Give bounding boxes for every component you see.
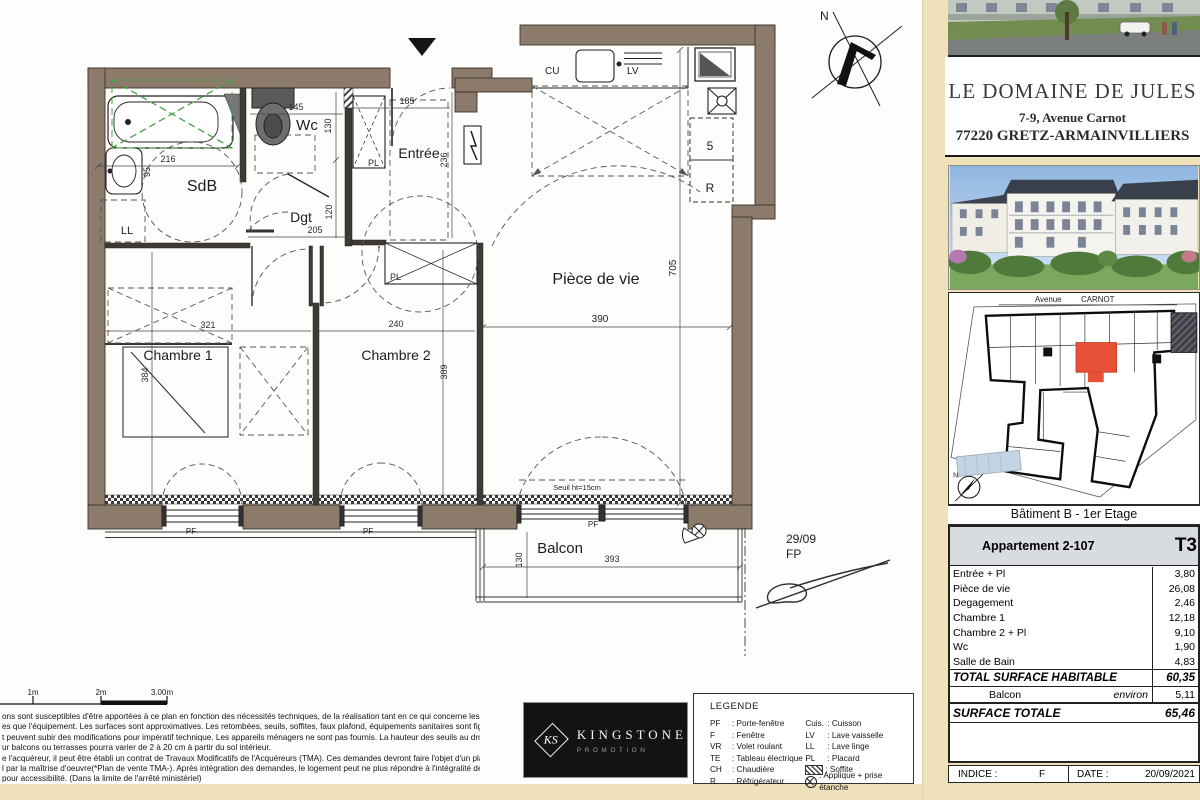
legend-label: : Lave vaisselle	[827, 731, 883, 740]
kingstone-monogram-icon: KS	[534, 723, 569, 758]
legend-abbr: LL	[805, 741, 827, 753]
legend-abbr: F	[710, 730, 732, 742]
disclaimer-line: e l'acquéreur, il peut être établi un co…	[2, 754, 480, 764]
compass-north-label: N	[820, 9, 829, 23]
legend-abbr: LV	[805, 730, 827, 742]
monogram-letters: KS	[544, 732, 558, 747]
table-row: Entrée + Pl3,80	[950, 567, 1198, 582]
dim-390: 390	[592, 314, 609, 325]
row-label: Chambre 1	[950, 612, 1152, 624]
plan-sheet-page: SdB LL Wc Dgt Entrée PL PL CU LV 5 R Piè…	[0, 0, 1200, 800]
legend-label: : Volet roulant	[732, 742, 782, 751]
legend-label: : Lave linge	[827, 742, 869, 751]
indice-label: INDICE :	[949, 769, 1016, 780]
disclaimer-line: pour accessibilité. (Dans la limite de l…	[2, 774, 480, 784]
label-5: 5	[707, 139, 714, 153]
disclaimer-line: ons sont susceptibles d'être apportées à…	[2, 712, 480, 722]
soffite-band	[105, 495, 732, 504]
row-value: 3,80	[1152, 567, 1198, 582]
legend-label: : Tableau électrique	[732, 754, 803, 763]
row-value: 26,08	[1152, 582, 1198, 597]
table-row: Pièce de vie26,08	[950, 582, 1198, 597]
dim-240: 240	[388, 319, 403, 329]
row-label: Chambre 2 + Pl	[950, 627, 1152, 639]
label-balcon: Balcon	[537, 540, 583, 557]
soffite-corner-box	[695, 48, 735, 81]
label-cu: CU	[545, 66, 559, 77]
dim-130: 130	[323, 118, 333, 133]
adjacent-building-hatched	[1171, 313, 1197, 353]
table-row: Wc1,90	[950, 640, 1198, 655]
legend-label: : Chaudière	[732, 765, 774, 774]
highlighted-unit	[1076, 343, 1117, 373]
apartment-type: T3	[1175, 535, 1197, 557]
date-value: 20/09/2021	[1131, 769, 1199, 780]
site-compass-icon	[955, 474, 983, 501]
room-label-piece-de-vie: Pièce de vie	[552, 271, 639, 288]
note-date: 29/09	[786, 532, 816, 546]
legend-label: : Cuisson	[827, 719, 861, 728]
washbasin	[106, 148, 142, 194]
street-photo	[948, 0, 1200, 57]
applique-ceiling-icon	[708, 88, 736, 114]
row-label: Entrée + Pl	[950, 568, 1152, 580]
dim-236: 236	[439, 152, 449, 167]
surface-label: SURFACE TOTALE	[950, 706, 1153, 720]
legend-abbr: TE	[710, 753, 732, 765]
info-panel: LE DOMAINE DE JULES 7-9, Avenue Carnot 7…	[948, 0, 1200, 800]
dim-120: 120	[324, 204, 334, 219]
disclaimer-line: ur balcons ou terrasses pourra varier de…	[2, 743, 480, 753]
dim-393: 393	[604, 554, 619, 564]
table-row: Chambre 112,18	[950, 611, 1198, 626]
legend-abbr: PF	[710, 718, 732, 730]
dim-216: 216	[160, 154, 175, 164]
logo-subtitle: PROMOTION	[577, 747, 687, 754]
electrical-panel	[464, 126, 481, 164]
stair-core	[1152, 354, 1161, 363]
balcony	[105, 528, 745, 656]
scale-3m: 3.00m	[151, 688, 174, 697]
total-row: TOTAL SURFACE HABITABLE 60,35	[950, 670, 1198, 687]
legend-label: : Fenêtre	[732, 731, 765, 740]
legend-label: : Applique + prise étanche	[819, 770, 913, 793]
street-name-1: Avenue	[1035, 295, 1062, 304]
label-pl-ch2: PL	[390, 272, 401, 282]
signature	[756, 560, 890, 608]
scale-bar: 1m 2m 3.00m	[0, 688, 210, 708]
residence-title: LE DOMAINE DE JULES	[945, 79, 1200, 104]
label-pf2: PF	[363, 527, 373, 536]
date-label: DATE :	[1068, 766, 1131, 782]
table-row: Degagement2,46	[950, 596, 1198, 611]
room-label-chambre1: Chambre 1	[143, 347, 212, 363]
building-rendering	[948, 165, 1200, 290]
label-pf1: PF	[186, 527, 196, 536]
dim-389: 389	[439, 364, 449, 379]
surface-value: 65,46	[1153, 706, 1198, 720]
dim-384: 384	[140, 367, 150, 382]
title-block: LE DOMAINE DE JULES 7-9, Avenue Carnot 7…	[945, 57, 1200, 157]
balcon-qualifier: environ	[1060, 689, 1152, 701]
surface-total-row: SURFACE TOTALE 65,46	[950, 704, 1198, 723]
compass-icon	[812, 12, 902, 106]
logo-name: KINGSTONE	[577, 727, 687, 743]
disclaimer-text: ons sont susceptibles d'être apportées à…	[2, 712, 480, 785]
legend-abbr: VR	[710, 741, 732, 753]
disclaimer-line: t peuvent subir des modifications pour i…	[2, 733, 480, 743]
legend-abbr: Cuis.	[805, 718, 827, 730]
dim-185: 185	[399, 96, 414, 106]
x-arrowhead-left	[532, 168, 541, 176]
legend-column-right: Cuis.: Cuisson LV: Lave vaisselle LL: La…	[805, 718, 913, 788]
wc-door-leaf	[288, 174, 329, 197]
room-label-wc: Wc	[296, 117, 318, 134]
legend-label: : Porte-fenêtre	[732, 719, 784, 728]
table-header: Appartement 2-107 T3	[950, 527, 1198, 566]
legend-abbr: PL	[805, 753, 827, 765]
dim-705: 705	[668, 259, 679, 276]
highlighted-unit-balcony	[1088, 372, 1104, 382]
label-r: R	[706, 181, 715, 195]
dim-95: 95	[142, 167, 152, 177]
scale-1m: 1m	[27, 688, 38, 697]
legend-label: : Réfrigérateur	[732, 777, 784, 786]
row-label: Pièce de vie	[950, 583, 1152, 595]
site-plan: Avenue CARNOT	[948, 292, 1200, 505]
room-label-dgt: Dgt	[290, 209, 312, 225]
dim-145: 145	[288, 102, 303, 112]
room-label-chambre2: Chambre 2	[361, 347, 430, 363]
total-label: TOTAL SURFACE HABITABLE	[950, 672, 1152, 684]
room-label-sdb: SdB	[187, 178, 217, 195]
toilet	[252, 88, 294, 145]
address-line2: 77220 GRETZ-ARMAINVILLIERS	[945, 128, 1200, 145]
dim-130-balcon: 130	[514, 552, 524, 567]
table-row: Salle de Bain4,83	[950, 655, 1198, 670]
row-label: Salle de Bain	[950, 656, 1152, 668]
disclaimer-line: l par la maîtrise d'oeuvre(*Plan de vent…	[2, 764, 480, 774]
note-fp: FP	[786, 547, 801, 561]
label-pf3: PF	[588, 520, 598, 529]
row-value: 1,90	[1152, 640, 1198, 655]
total-value: 60,35	[1152, 670, 1198, 686]
site-north-label: N	[953, 472, 958, 479]
label-seuil: Seuil ht=15cm	[553, 483, 601, 492]
address-line1: 7-9, Avenue Carnot	[945, 110, 1200, 126]
applique-lamp-icon	[805, 776, 817, 788]
legend-abbr: R	[710, 776, 732, 788]
entrance-arrow-icon	[408, 38, 436, 56]
room-label-entree: Entrée	[398, 145, 439, 161]
floor-plan: SdB LL Wc Dgt Entrée PL PL CU LV 5 R Piè…	[0, 0, 922, 690]
row-label: Wc	[950, 641, 1152, 653]
row-value: 12,18	[1152, 611, 1198, 626]
row-label: Degagement	[950, 597, 1152, 609]
table-rows: Entrée + Pl3,80 Pièce de vie26,08 Degage…	[950, 566, 1198, 670]
apartment-number: Appartement 2-107	[982, 539, 1095, 553]
building-floor-bar: Bâtiment B - 1er Etage	[948, 505, 1200, 525]
row-value: 4,83	[1152, 655, 1198, 670]
label-lv: LV	[627, 66, 639, 77]
legend-box: LEGENDE PF: Porte-fenêtre F: Fenêtre VR:…	[693, 693, 914, 784]
legend-column-left: PF: Porte-fenêtre F: Fenêtre VR: Volet r…	[710, 718, 805, 788]
kingstone-logo: KS KINGSTONE PROMOTION	[523, 702, 688, 778]
balcon-value: 5,11	[1152, 687, 1198, 702]
drawing-sheet: SdB LL Wc Dgt Entrée PL PL CU LV 5 R Piè…	[0, 0, 922, 784]
row-value: 2,46	[1152, 596, 1198, 611]
label-pl-entree: PL	[368, 158, 379, 168]
applique-balcony-icon	[682, 524, 706, 543]
row-value: 9,10	[1152, 625, 1198, 640]
disclaimer-line: es que l'équipement. Les surfaces sont a…	[2, 722, 480, 732]
dim-321: 321	[200, 320, 215, 330]
stair-core	[1043, 347, 1052, 356]
legend-label: : Placard	[827, 754, 859, 763]
indice-date-row: INDICE : F DATE : 20/09/2021	[948, 765, 1200, 783]
dim-205: 205	[307, 225, 322, 235]
label-ll: LL	[121, 225, 133, 237]
surface-table: Appartement 2-107 T3 Entrée + Pl3,80 Piè…	[948, 525, 1200, 763]
indice-value: F	[1016, 769, 1068, 780]
legend-title: LEGENDE	[710, 701, 913, 712]
scale-2m: 2m	[95, 688, 106, 697]
legend-abbr: CH	[710, 764, 732, 776]
street-name-2: CARNOT	[1081, 295, 1115, 304]
balcon-row: Balcon environ 5,11	[950, 687, 1198, 704]
balcon-label: Balcon	[950, 689, 1060, 701]
table-row: Chambre 2 + Pl9,10	[950, 625, 1198, 640]
